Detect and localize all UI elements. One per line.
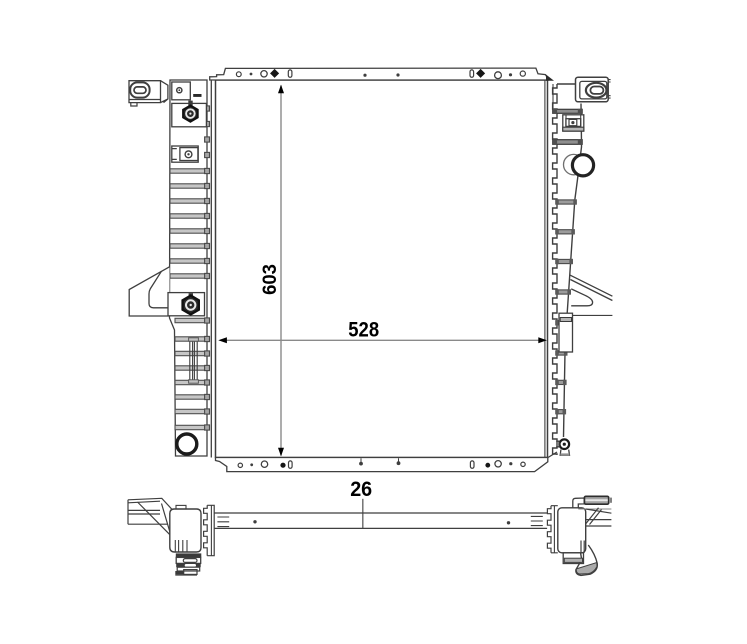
- svg-text:528: 528: [348, 319, 379, 342]
- svg-text:603: 603: [260, 264, 281, 295]
- svg-text:26: 26: [350, 477, 372, 501]
